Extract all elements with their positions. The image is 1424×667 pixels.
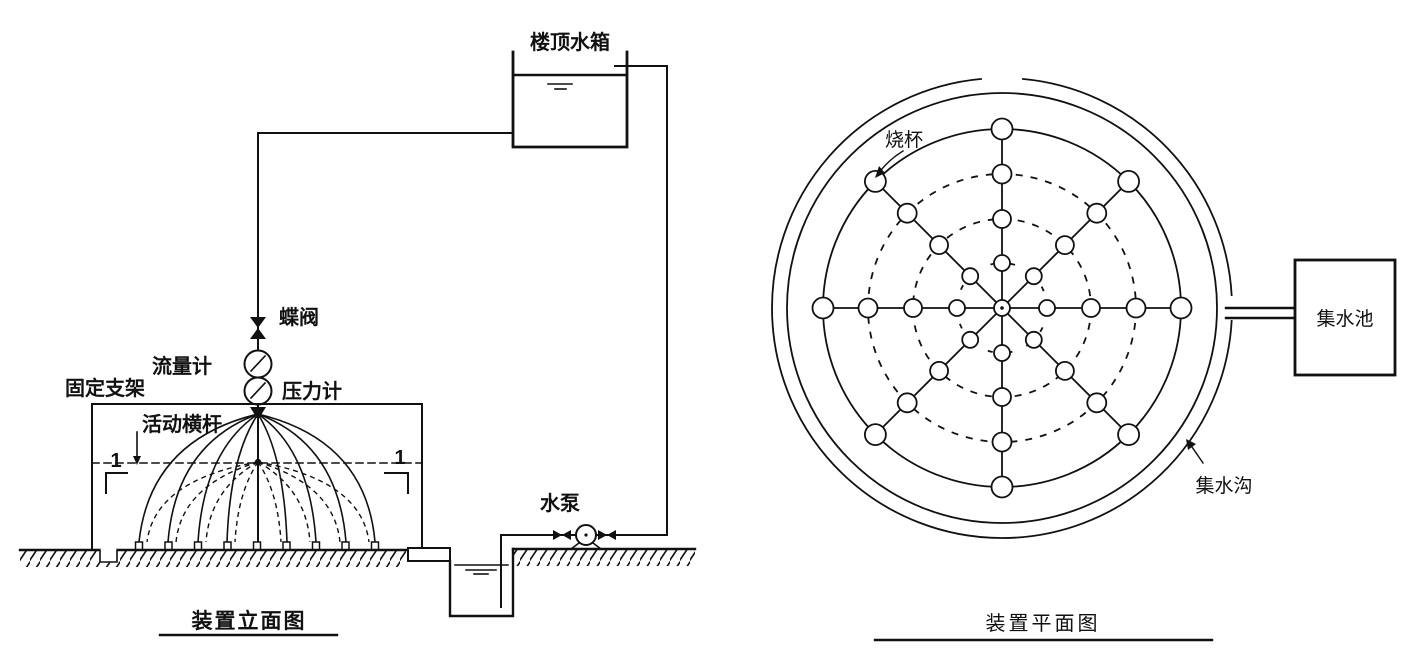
valve-label: 蝶阀 [279,305,319,329]
beaker [859,299,878,318]
plan-view: 烧杯 集水沟 集水池 装置平面图 [772,79,1395,640]
pressure-gauge: 压力计 [245,378,343,405]
plan-title-block: 装置平面图 [875,612,1212,640]
section-mark-right: 1 [394,447,405,469]
plan-title: 装置平面图 [986,612,1101,635]
beaker [1118,424,1139,445]
beaker [1026,332,1042,348]
ground-hatch-left [20,551,406,567]
beaker [962,268,978,284]
tank-label: 楼顶水箱 [530,30,610,54]
ditch-leader-line [1192,447,1203,463]
beaker [994,345,1010,361]
beaker [1087,204,1106,223]
ditch-callout: 集水沟 [1186,439,1253,497]
tank-walls [513,52,627,147]
ditch-label: 集水沟 [1195,475,1252,497]
flow-meter-gauge: 流量计 [152,351,272,379]
beaker [898,204,917,223]
section-bracket-right [385,473,408,493]
pump-label: 水泵 [540,492,580,515]
pit-walls [450,549,513,616]
beaker [1118,171,1139,192]
ground [20,548,695,567]
beaker [1056,236,1074,254]
elevation-view: 楼顶水箱 蝶阀 流量计 压力计 固定支架 活动 [20,30,695,635]
section-bracket-left [106,473,127,493]
riser-pipe [615,66,667,535]
rooftop-tank: 楼顶水箱 [513,30,627,147]
elevation-title: 装置立面图 [192,609,307,633]
beaker [898,393,917,412]
schematic-canvas: 楼顶水箱 蝶阀 流量计 压力计 固定支架 活动 [0,0,1424,667]
beaker [993,210,1011,228]
beaker [992,119,1013,140]
beaker [993,388,1011,406]
water-pump-icon: 水泵 [540,492,616,549]
beaker-label: 烧杯 [885,129,923,151]
beaker [1056,362,1074,380]
ground-hatch-right [513,550,695,566]
section-mark-left: 1 [110,450,121,472]
beaker [1127,299,1146,318]
beaker [994,255,1010,271]
beaker [1039,300,1055,316]
collecting-pool: 集水池 [1226,260,1395,375]
beaker [930,236,948,254]
flow-meter-label: 流量计 [152,354,212,378]
beaker [1026,268,1042,284]
beaker [865,424,886,445]
beaker-grid [813,119,1192,498]
elevation-title-block: 装置立面图 [160,609,337,635]
beaker [930,362,948,380]
beaker [1082,299,1100,317]
beaker-callout: 烧杯 [875,129,923,178]
beaker [993,165,1012,184]
beaker [813,298,834,319]
beaker [993,433,1012,452]
beaker [1171,298,1192,319]
beaker [1087,393,1106,412]
frame-label: 固定支架 [65,376,145,400]
beaker [949,300,965,316]
sump-pit [450,549,513,616]
foundation-notch [100,549,117,562]
butterfly-valve-icon: 蝶阀 [250,305,319,339]
pressure-gauge-label: 压力计 [282,380,342,403]
frame-foot-platform [408,548,450,561]
pool-label: 集水池 [1316,308,1373,330]
beaker [962,332,978,348]
beaker [992,477,1013,498]
beaker [904,299,922,317]
center-dot [1000,306,1004,310]
